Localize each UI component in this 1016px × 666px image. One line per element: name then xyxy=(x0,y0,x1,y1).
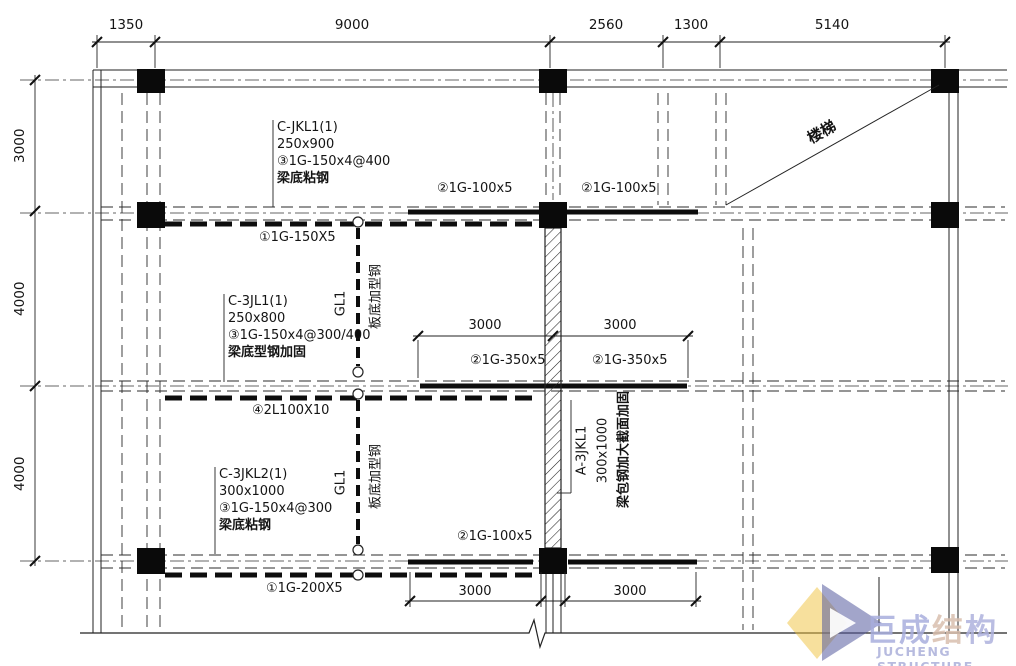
stair-diagonal-line xyxy=(726,85,939,205)
annotation-c-jkl1: C-JKL1(1) 250x900 ③1G-150x4@400 梁底粘钢 xyxy=(277,119,390,187)
dim-bottom-3000-right: 3000 xyxy=(600,585,660,600)
label-plate-r2-left: ②1G-100x5 xyxy=(437,182,512,197)
label-plate-r2-right: ②1G-100x5 xyxy=(581,182,656,197)
dim-left-4000a: 4000 xyxy=(13,269,29,329)
dim-left-3000: 3000 xyxy=(13,116,29,176)
dim-mid-3000-right: 3000 xyxy=(590,319,650,334)
label-slab-note-lower: 板底加型钢 xyxy=(370,436,385,516)
label-beam-r2: ①1G-150X5 xyxy=(259,231,336,246)
label-gl1-upper: GL1 xyxy=(335,283,350,323)
label-plate-r3-left: ②1G-350x5 xyxy=(470,354,545,369)
hatched-beam-a3jkl1 xyxy=(545,228,561,548)
label-plate-r3-right: ②1G-350x5 xyxy=(592,354,667,369)
dim-top-1300: 1300 xyxy=(661,18,721,34)
dim-top-5140: 5140 xyxy=(802,18,862,34)
label-plate-r4: ②1G-100x5 xyxy=(457,530,532,545)
annotation-c-3jkl2: C-3JKL2(1) 300x1000 ③1G-150x4@300 梁底粘钢 xyxy=(219,466,332,534)
dim-mid-3000-left: 3000 xyxy=(455,319,515,334)
label-beam-r4: ①1G-200X5 xyxy=(266,582,343,597)
dim-top-2560: 2560 xyxy=(576,18,636,34)
label-slab-note-upper: 板底加型钢 xyxy=(370,256,385,336)
dim-top-9000: 9000 xyxy=(322,18,382,34)
label-beam-r3: ④2L100X10 xyxy=(252,404,329,419)
label-gl1-lower: GL1 xyxy=(335,462,350,502)
dim-bottom-3000-left: 3000 xyxy=(445,585,505,600)
dim-top-1350: 1350 xyxy=(96,18,156,34)
label-a3jkl1-name: A-3JKL1 xyxy=(576,405,591,495)
label-a3jkl1-note: 梁包钢加大截面加固 xyxy=(618,389,633,509)
logo-text-en: JUCHENG STRUCTURE xyxy=(877,644,1016,666)
label-a3jkl1-size: 300x1000 xyxy=(597,405,612,495)
dim-left-4000b: 4000 xyxy=(13,444,29,504)
structural-plan-drawing: 1350 9000 2560 1300 5140 3000 4000 4000 … xyxy=(0,0,1016,666)
